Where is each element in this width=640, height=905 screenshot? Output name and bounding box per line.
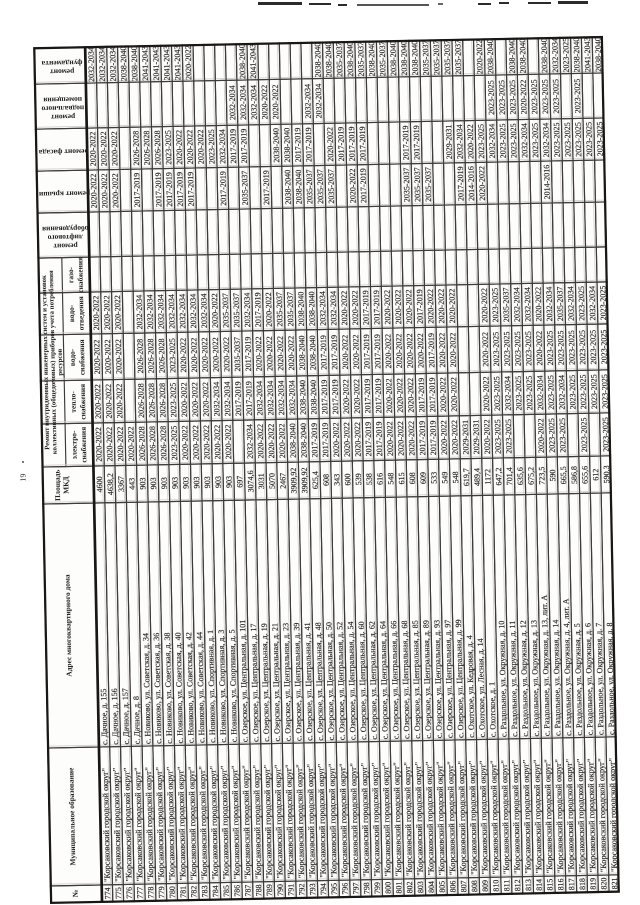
svg-text:2041-2043: 2041-2043 xyxy=(151,46,161,81)
svg-text:4600: 4600 xyxy=(95,477,104,493)
svg-text:2020-2022: 2020-2022 xyxy=(179,383,189,418)
svg-text:2026-2028: 2026-2028 xyxy=(148,426,158,461)
svg-text:2038-2040: 2038-2040 xyxy=(130,47,140,82)
svg-text:2023-2025: 2023-2025 xyxy=(573,79,583,114)
svg-text:776: 776 xyxy=(125,887,134,899)
svg-text:2020-2022: 2020-2022 xyxy=(437,333,447,368)
svg-text:2020-2022: 2020-2022 xyxy=(126,427,136,462)
svg-text:2038-2040: 2038-2040 xyxy=(119,47,129,82)
svg-text:2020-2022: 2020-2022 xyxy=(351,335,361,370)
svg-text:2023-2025: 2023-2025 xyxy=(579,418,589,453)
svg-text:815: 815 xyxy=(545,879,554,891)
svg-text:тепло-: тепло- xyxy=(68,391,77,413)
svg-text:2020-2022: 2020-2022 xyxy=(383,290,393,325)
svg-text:2026-2028: 2026-2028 xyxy=(136,383,146,418)
svg-text:786: 786 xyxy=(232,885,241,897)
svg-text:2020-2022: 2020-2022 xyxy=(113,295,123,330)
svg-text:805: 805 xyxy=(437,881,446,893)
svg-text:790: 790 xyxy=(276,884,285,896)
svg-text:2038-2040: 2038-2040 xyxy=(367,42,377,77)
svg-text:2023-2025: 2023-2025 xyxy=(547,418,557,453)
svg-text:804: 804 xyxy=(427,881,436,893)
svg-text:2029-2031: 2029-2031 xyxy=(461,420,471,455)
svg-text:2020-2022: 2020-2022 xyxy=(88,132,98,167)
svg-text:2032-2034: 2032-2034 xyxy=(199,294,209,329)
svg-text:2023-2025: 2023-2025 xyxy=(551,79,561,114)
svg-text:2032-2034: 2032-2034 xyxy=(178,294,188,329)
svg-text:2035-2037: 2035-2037 xyxy=(453,40,463,75)
svg-text:2026-2028: 2026-2028 xyxy=(158,383,168,418)
svg-text:2035-2037: 2035-2037 xyxy=(275,292,285,327)
svg-text:4638,2: 4638,2 xyxy=(106,473,115,495)
svg-text:723,5: 723,5 xyxy=(537,467,546,485)
svg-text:796: 796 xyxy=(340,883,349,895)
svg-text:2032-2034: 2032-2034 xyxy=(228,86,238,121)
svg-text:2020-2022: 2020-2022 xyxy=(201,382,211,417)
svg-text:2017-2019: 2017-2019 xyxy=(304,128,314,163)
svg-text:2038-2040: 2038-2040 xyxy=(282,128,292,163)
svg-text:792: 792 xyxy=(297,884,306,896)
svg-text:2017-2019: 2017-2019 xyxy=(186,172,196,207)
svg-text:2017-2019: 2017-2019 xyxy=(374,379,384,414)
svg-text:811: 811 xyxy=(502,880,511,892)
svg-text:2038-2040: 2038-2040 xyxy=(299,423,309,458)
svg-text:2032-2034: 2032-2034 xyxy=(503,376,513,411)
svg-text:2020-2022: 2020-2022 xyxy=(519,80,529,115)
svg-text:2023-2025: 2023-2025 xyxy=(164,130,174,165)
svg-text:2023-2025: 2023-2025 xyxy=(589,375,599,410)
svg-text:548: 548 xyxy=(386,473,395,485)
svg-text:2035-2037: 2035-2037 xyxy=(305,170,315,205)
svg-text:777: 777 xyxy=(135,887,144,899)
svg-text:791: 791 xyxy=(286,884,295,896)
svg-text:819: 819 xyxy=(588,878,597,890)
svg-text:2017-2019: 2017-2019 xyxy=(428,378,438,413)
svg-text:2017-2019: 2017-2019 xyxy=(364,422,374,457)
svg-text:2020-2022: 2020-2022 xyxy=(260,85,270,120)
svg-text:775: 775 xyxy=(114,887,123,899)
svg-text:2017-2019: 2017-2019 xyxy=(154,173,164,208)
svg-text:2017-2019: 2017-2019 xyxy=(228,129,238,164)
svg-text:2020-2022: 2020-2022 xyxy=(191,425,201,460)
svg-text:2035-2037: 2035-2037 xyxy=(442,40,452,75)
svg-text:2020-2022: 2020-2022 xyxy=(384,379,394,414)
svg-text:2023-2025: 2023-2025 xyxy=(491,332,501,367)
svg-text:2017-2019: 2017-2019 xyxy=(347,127,357,162)
svg-text:2020-2022: 2020-2022 xyxy=(93,384,103,419)
svg-text:2014-2016: 2014-2016 xyxy=(542,165,552,200)
svg-text:2032-2034: 2032-2034 xyxy=(520,123,530,158)
svg-text:2017-2019: 2017-2019 xyxy=(243,337,253,372)
svg-text:608: 608 xyxy=(408,472,417,484)
svg-text:2017-2019: 2017-2019 xyxy=(293,128,303,163)
svg-text:2017-2019: 2017-2019 xyxy=(427,333,437,368)
svg-text:снабжения: снабжения xyxy=(79,427,89,463)
svg-text:с. Охотское, д. 1: с. Охотское, д. 1 xyxy=(487,682,497,737)
svg-text:2020-2022: 2020-2022 xyxy=(352,379,362,414)
svg-text:2032-2034: 2032-2034 xyxy=(266,381,276,416)
svg-text:2017-2019: 2017-2019 xyxy=(373,334,383,369)
svg-text:2035-2037: 2035-2037 xyxy=(221,293,231,328)
svg-text:2026-2028: 2026-2028 xyxy=(142,131,152,166)
svg-text:2020-2022: 2020-2022 xyxy=(534,287,544,322)
svg-text:2020-2022: 2020-2022 xyxy=(184,45,194,80)
svg-text:2020-2022: 2020-2022 xyxy=(342,422,352,457)
svg-text:2035-2037: 2035-2037 xyxy=(286,292,296,327)
svg-text:2017-2019: 2017-2019 xyxy=(361,291,371,326)
svg-text:2020-2022: 2020-2022 xyxy=(466,124,476,159)
svg-text:801: 801 xyxy=(394,882,403,894)
svg-text:2023-2025: 2023-2025 xyxy=(530,123,540,158)
svg-text:701,4: 701,4 xyxy=(505,468,514,486)
svg-text:785: 785 xyxy=(222,885,231,897)
svg-text:2020-2022: 2020-2022 xyxy=(383,334,393,369)
svg-text:2026-2028: 2026-2028 xyxy=(159,426,169,461)
svg-text:№: № xyxy=(71,890,80,898)
svg-text:водо-: водо- xyxy=(67,304,76,322)
svg-text:помещения: помещения xyxy=(43,95,82,105)
svg-text:2032-2034: 2032-2034 xyxy=(238,85,248,120)
svg-text:903: 903 xyxy=(181,477,190,489)
svg-text:2020-2022: 2020-2022 xyxy=(185,130,195,165)
svg-text:2035-2037: 2035-2037 xyxy=(421,41,431,76)
svg-text:2017-2019: 2017-2019 xyxy=(233,382,243,417)
svg-text:2020-2022: 2020-2022 xyxy=(189,338,199,373)
svg-text:798: 798 xyxy=(362,882,371,894)
svg-text:2020-2022: 2020-2022 xyxy=(200,338,210,373)
svg-text:2032-2034: 2032-2034 xyxy=(276,381,286,416)
svg-text:2017-2019: 2017-2019 xyxy=(330,335,340,370)
svg-text:612: 612 xyxy=(591,469,600,481)
svg-text:810: 810 xyxy=(491,880,500,892)
svg-text:2038-2040: 2038-2040 xyxy=(324,43,334,78)
svg-text:2020-2022: 2020-2022 xyxy=(480,288,490,323)
svg-text:2029-2031: 2029-2031 xyxy=(444,125,454,160)
svg-text:794: 794 xyxy=(319,883,328,895)
svg-text:2035-2037: 2035-2037 xyxy=(432,41,442,76)
svg-text:снабжения: снабжения xyxy=(77,340,87,376)
svg-text:2032-2034: 2032-2034 xyxy=(550,38,560,73)
svg-text:2020-2022: 2020-2022 xyxy=(102,296,112,331)
svg-text:электро-: электро- xyxy=(69,430,79,459)
svg-text:2020-2022: 2020-2022 xyxy=(116,427,126,462)
svg-text:2020-2022: 2020-2022 xyxy=(535,331,545,366)
svg-text:2017-2019: 2017-2019 xyxy=(262,170,272,205)
svg-text:2017-2019: 2017-2019 xyxy=(456,167,466,202)
svg-text:2041-2043: 2041-2043 xyxy=(248,44,258,79)
svg-text:снабжения: снабжения xyxy=(75,257,85,293)
svg-text:2020-2022: 2020-2022 xyxy=(180,426,190,461)
svg-text:2038-2040: 2038-2040 xyxy=(288,423,298,458)
svg-text:2035-2037: 2035-2037 xyxy=(555,287,565,322)
svg-text:2020-2022: 2020-2022 xyxy=(264,292,274,327)
svg-text:655,6: 655,6 xyxy=(580,466,589,484)
svg-text:2035-2037: 2035-2037 xyxy=(232,293,242,328)
svg-text:2035-2037: 2035-2037 xyxy=(423,167,433,202)
svg-text:2032-2034: 2032-2034 xyxy=(97,47,107,82)
svg-text:2023-2025: 2023-2025 xyxy=(168,338,178,373)
svg-text:802: 802 xyxy=(405,882,414,894)
svg-text:799: 799 xyxy=(373,882,382,894)
svg-text:с. Дачное, д. 156: с. Дачное, д. 156 xyxy=(110,689,120,745)
svg-text:газо-: газо- xyxy=(66,267,75,284)
svg-text:2032-2034: 2032-2034 xyxy=(303,84,313,119)
svg-text:2023-2025: 2023-2025 xyxy=(498,124,508,159)
svg-text:2020-2022: 2020-2022 xyxy=(348,169,358,204)
svg-text:2032-2034: 2032-2034 xyxy=(242,293,252,328)
svg-text:814: 814 xyxy=(535,879,544,891)
svg-text:538: 538 xyxy=(365,473,374,485)
svg-text:2035-2037: 2035-2037 xyxy=(501,288,511,323)
svg-text:2020-2022: 2020-2022 xyxy=(353,422,363,457)
svg-text:с. Дачное, д. 157: с. Дачное, д. 157 xyxy=(121,688,131,744)
svg-text:2020-2022: 2020-2022 xyxy=(393,290,403,325)
svg-text:2023-2025: 2023-2025 xyxy=(513,332,523,367)
svg-text:609: 609 xyxy=(419,472,428,484)
svg-text:2017-2019: 2017-2019 xyxy=(164,172,174,207)
svg-text:2023-2025: 2023-2025 xyxy=(556,331,566,366)
svg-text:2020-2022: 2020-2022 xyxy=(426,289,436,324)
svg-text:2017-2019: 2017-2019 xyxy=(428,421,438,456)
svg-text:2017-2019: 2017-2019 xyxy=(374,422,384,457)
svg-text:2023-2025: 2023-2025 xyxy=(599,330,609,365)
svg-text:2023-2025: 2023-2025 xyxy=(525,376,535,411)
svg-text:2038-2040: 2038-2040 xyxy=(309,380,319,415)
svg-text:2032-2034: 2032-2034 xyxy=(455,125,465,160)
svg-text:2038-2040: 2038-2040 xyxy=(388,41,398,76)
svg-text:2038-2040: 2038-2040 xyxy=(313,43,323,78)
svg-text:ремонт крыши: ремонт крыши xyxy=(38,189,90,199)
svg-text:675,2: 675,2 xyxy=(526,467,535,485)
svg-text:2026-2028: 2026-2028 xyxy=(147,383,157,418)
svg-text:2020-2022: 2020-2022 xyxy=(265,336,275,371)
svg-text:2017-2019: 2017-2019 xyxy=(415,289,425,324)
svg-text:2020-2022: 2020-2022 xyxy=(475,40,485,75)
svg-text:2020-2022: 2020-2022 xyxy=(210,294,220,329)
svg-text:608: 608 xyxy=(322,474,331,486)
svg-text:539: 539 xyxy=(354,474,363,486)
svg-text:2023-2025: 2023-2025 xyxy=(490,288,500,323)
svg-text:2038-2040: 2038-2040 xyxy=(271,128,281,163)
svg-text:2038-2040: 2038-2040 xyxy=(308,336,318,371)
svg-text:2023-2025: 2023-2025 xyxy=(567,330,577,365)
svg-text:590: 590 xyxy=(548,470,557,482)
svg-text:619,7: 619,7 xyxy=(462,468,471,486)
svg-text:2020-2022: 2020-2022 xyxy=(404,290,414,325)
svg-text:665,5: 665,5 xyxy=(559,467,568,485)
svg-text:816: 816 xyxy=(556,879,565,891)
svg-text:2017-2019: 2017-2019 xyxy=(336,127,346,162)
svg-text:2032-2034: 2032-2034 xyxy=(314,84,324,119)
svg-text:2020-2022: 2020-2022 xyxy=(407,421,417,456)
svg-text:2023-2025: 2023-2025 xyxy=(600,374,610,409)
svg-text:2038-2040: 2038-2040 xyxy=(518,39,528,74)
svg-text:2023-2025: 2023-2025 xyxy=(545,331,555,366)
svg-text:5070: 5070 xyxy=(267,473,276,489)
svg-text:2035-2037: 2035-2037 xyxy=(232,337,242,372)
svg-text:снабжения: снабжения xyxy=(78,384,88,420)
svg-text:2020-2022: 2020-2022 xyxy=(340,291,350,326)
svg-text:903: 903 xyxy=(224,476,233,488)
svg-text:2020-2022: 2020-2022 xyxy=(99,132,109,167)
svg-text:2032-2034: 2032-2034 xyxy=(557,375,567,410)
svg-text:2035-2037: 2035-2037 xyxy=(240,171,250,206)
svg-text:2038-2040: 2038-2040 xyxy=(307,292,317,327)
svg-text:2032-2034: 2032-2034 xyxy=(523,287,533,322)
svg-text:2020-2022: 2020-2022 xyxy=(256,424,266,459)
svg-text:2017-2019: 2017-2019 xyxy=(175,172,185,207)
svg-text:3074,6: 3074,6 xyxy=(246,471,255,493)
svg-text:2038-2040: 2038-2040 xyxy=(298,380,308,415)
svg-text:812: 812 xyxy=(513,880,522,892)
svg-text:2020-2022: 2020-2022 xyxy=(222,337,232,372)
svg-text:2017-2019: 2017-2019 xyxy=(321,423,331,458)
svg-text:2023-2025: 2023-2025 xyxy=(207,130,217,165)
svg-text:2020-2022: 2020-2022 xyxy=(394,334,404,369)
svg-text:2023-2025: 2023-2025 xyxy=(493,419,503,454)
svg-text:2020-2022: 2020-2022 xyxy=(115,384,125,419)
svg-text:2032-2034: 2032-2034 xyxy=(135,295,145,330)
svg-text:2020-2022: 2020-2022 xyxy=(94,427,104,462)
svg-text:2017-2019: 2017-2019 xyxy=(372,290,382,325)
svg-text:2032-2034: 2032-2034 xyxy=(86,47,96,82)
svg-text:2032-2034: 2032-2034 xyxy=(318,291,328,326)
svg-text:2020-2022: 2020-2022 xyxy=(174,130,184,165)
svg-text:2032-2034: 2032-2034 xyxy=(329,291,339,326)
svg-text:2041-2043: 2041-2043 xyxy=(140,46,150,81)
svg-text:2020-2022: 2020-2022 xyxy=(341,379,351,414)
svg-text:2017-2019: 2017-2019 xyxy=(412,125,422,160)
svg-text:779: 779 xyxy=(157,887,166,899)
svg-text:2020-2022: 2020-2022 xyxy=(110,131,120,166)
svg-text:781: 781 xyxy=(179,886,188,898)
svg-text:2035-2037: 2035-2037 xyxy=(378,42,388,77)
svg-text:2023-2025: 2023-2025 xyxy=(476,124,486,159)
svg-text:793: 793 xyxy=(308,884,317,896)
svg-text:2017-2019: 2017-2019 xyxy=(363,379,373,414)
svg-text:2032-2034: 2032-2034 xyxy=(245,424,255,459)
svg-text:783: 783 xyxy=(200,886,209,898)
svg-text:2041-2043: 2041-2043 xyxy=(162,46,172,81)
svg-text:2020-2022: 2020-2022 xyxy=(449,377,459,412)
svg-text:ремонт фасада: ремонт фасада xyxy=(38,147,88,157)
svg-text:615: 615 xyxy=(397,473,406,485)
svg-text:2032-2034: 2032-2034 xyxy=(535,376,545,411)
svg-text:1172: 1172 xyxy=(483,469,492,485)
svg-text:533: 533 xyxy=(429,472,438,484)
svg-text:807: 807 xyxy=(459,881,468,893)
svg-text:548: 548 xyxy=(451,472,460,484)
svg-text:2020-2022: 2020-2022 xyxy=(385,422,395,457)
svg-text:795: 795 xyxy=(330,883,339,895)
svg-text:2026-2028: 2026-2028 xyxy=(153,131,163,166)
svg-text:2020-2022: 2020-2022 xyxy=(437,289,447,324)
svg-text:2023-2025: 2023-2025 xyxy=(579,375,589,410)
svg-text:2017-2019: 2017-2019 xyxy=(253,293,263,328)
svg-text:2020-2022: 2020-2022 xyxy=(447,289,457,324)
svg-text:2020-2022: 2020-2022 xyxy=(271,85,281,120)
svg-text:2020-2022: 2020-2022 xyxy=(89,174,99,209)
svg-text:2017-2019: 2017-2019 xyxy=(310,423,320,458)
svg-text:2020-2022: 2020-2022 xyxy=(105,427,115,462)
svg-text:697: 697 xyxy=(235,476,244,488)
svg-text:489,4: 489,4 xyxy=(472,468,481,486)
svg-text:2020-2022: 2020-2022 xyxy=(276,336,286,371)
svg-text:2020-2022: 2020-2022 xyxy=(213,425,223,460)
svg-text:2023-2025: 2023-2025 xyxy=(508,80,518,115)
svg-text:2020-2022: 2020-2022 xyxy=(104,384,114,419)
svg-text:2020-2022: 2020-2022 xyxy=(482,420,492,455)
svg-text:2023-2025: 2023-2025 xyxy=(595,122,605,157)
svg-text:2020-2022: 2020-2022 xyxy=(202,425,212,460)
svg-text:2023-2025: 2023-2025 xyxy=(558,418,568,453)
svg-text:2020-2022: 2020-2022 xyxy=(536,419,546,454)
svg-text:2020-2022: 2020-2022 xyxy=(223,425,233,460)
svg-text:2017-2019: 2017-2019 xyxy=(132,173,142,208)
svg-text:2038-2040: 2038-2040 xyxy=(540,38,550,73)
svg-text:2038-2040: 2038-2040 xyxy=(572,38,582,73)
svg-text:2020-2022: 2020-2022 xyxy=(439,421,449,456)
svg-text:2020-2022: 2020-2022 xyxy=(406,378,416,413)
svg-text:2032-2034: 2032-2034 xyxy=(212,382,222,417)
svg-text:647,2: 647,2 xyxy=(494,468,503,486)
svg-text:2023-2025: 2023-2025 xyxy=(561,38,571,73)
svg-text:813: 813 xyxy=(524,879,533,891)
svg-text:2017-2019: 2017-2019 xyxy=(218,171,228,206)
svg-text:2041-2043: 2041-2043 xyxy=(583,38,593,73)
svg-text:2023-2025: 2023-2025 xyxy=(514,376,524,411)
svg-text:2035-2037: 2035-2037 xyxy=(413,167,423,202)
svg-text:2023-2025: 2023-2025 xyxy=(504,419,514,454)
svg-text:2014-2016: 2014-2016 xyxy=(466,166,476,201)
svg-text:2032-2034: 2032-2034 xyxy=(255,381,265,416)
svg-text:2038-2040: 2038-2040 xyxy=(593,37,603,72)
svg-text:2038-2040: 2038-2040 xyxy=(238,44,248,79)
svg-text:2020-2022: 2020-2022 xyxy=(448,333,458,368)
svg-text:2032-2034: 2032-2034 xyxy=(167,294,177,329)
svg-text:2020-2022: 2020-2022 xyxy=(286,336,296,371)
svg-text:2026-2028: 2026-2028 xyxy=(131,131,141,166)
svg-text:789: 789 xyxy=(265,884,274,896)
svg-text:с. Дачное, д. 155: с. Дачное, д. 155 xyxy=(99,689,109,745)
svg-text:586,8: 586,8 xyxy=(570,466,579,484)
svg-text:2038-2040: 2038-2040 xyxy=(283,170,293,205)
svg-text:2017-2019: 2017-2019 xyxy=(320,380,330,415)
svg-text:590,3: 590,3 xyxy=(602,466,611,484)
svg-text:787: 787 xyxy=(243,885,252,897)
svg-text:2038-2040: 2038-2040 xyxy=(399,41,409,76)
svg-text:2023-2025: 2023-2025 xyxy=(578,330,588,365)
svg-text:443: 443 xyxy=(127,478,136,490)
svg-text:2020-2022: 2020-2022 xyxy=(267,424,277,459)
svg-text:с. Дачное, д. 8: с. Дачное, д. 8 xyxy=(132,696,142,744)
svg-text:809: 809 xyxy=(481,880,490,892)
svg-text:2032-2034: 2032-2034 xyxy=(145,295,155,330)
svg-text:2020-2022: 2020-2022 xyxy=(179,338,189,373)
svg-text:2032-2034: 2032-2034 xyxy=(544,287,554,322)
svg-text:2032-2034: 2032-2034 xyxy=(541,123,551,158)
svg-text:2023-2025: 2023-2025 xyxy=(492,376,502,411)
svg-text:817: 817 xyxy=(567,878,576,890)
svg-text:2020-2022: 2020-2022 xyxy=(277,424,287,459)
svg-text:2026-2028: 2026-2028 xyxy=(146,339,156,374)
svg-text:2032-2034: 2032-2034 xyxy=(108,47,118,82)
svg-text:2017-2019: 2017-2019 xyxy=(417,378,427,413)
svg-text:2035-2037: 2035-2037 xyxy=(356,42,366,77)
svg-text:2023-2025: 2023-2025 xyxy=(601,417,611,452)
svg-text:3367: 3367 xyxy=(117,476,126,492)
svg-text:2023-2025: 2023-2025 xyxy=(598,286,608,321)
